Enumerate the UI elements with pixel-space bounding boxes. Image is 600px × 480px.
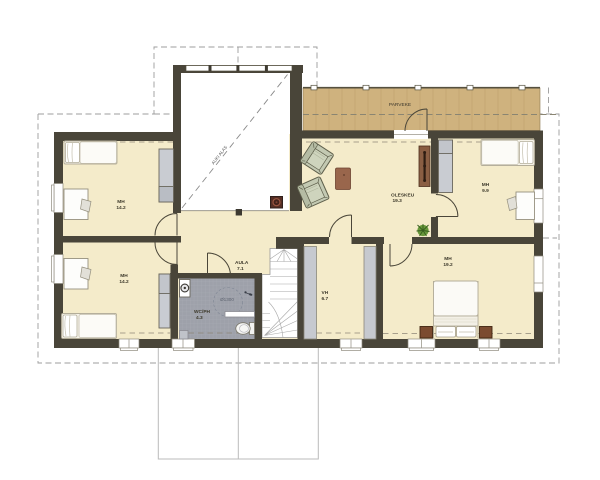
svg-text:19.2: 19.2 [443,262,453,268]
svg-text:OLESKEU: OLESKEU [391,193,415,199]
svg-text:MH: MH [120,273,128,279]
svg-text:WC/PH: WC/PH [194,309,211,315]
svg-text:14.2: 14.2 [119,279,129,285]
svg-text:PARVEKE: PARVEKE [389,102,411,108]
svg-text:MH: MH [117,199,125,205]
svg-text:14.2: 14.2 [116,205,126,211]
svg-text:Ø1300: Ø1300 [220,297,234,302]
svg-text:7.1: 7.1 [237,266,244,272]
svg-text:AULA: AULA [235,260,249,266]
svg-text:VH: VH [322,290,329,296]
svg-text:4.3: 4.3 [196,315,203,321]
svg-text:6.7: 6.7 [322,296,329,302]
svg-text:9.9: 9.9 [482,188,489,194]
svg-text:19.3: 19.3 [393,198,403,204]
svg-text:MH: MH [444,256,452,262]
svg-text:MH: MH [482,182,490,188]
